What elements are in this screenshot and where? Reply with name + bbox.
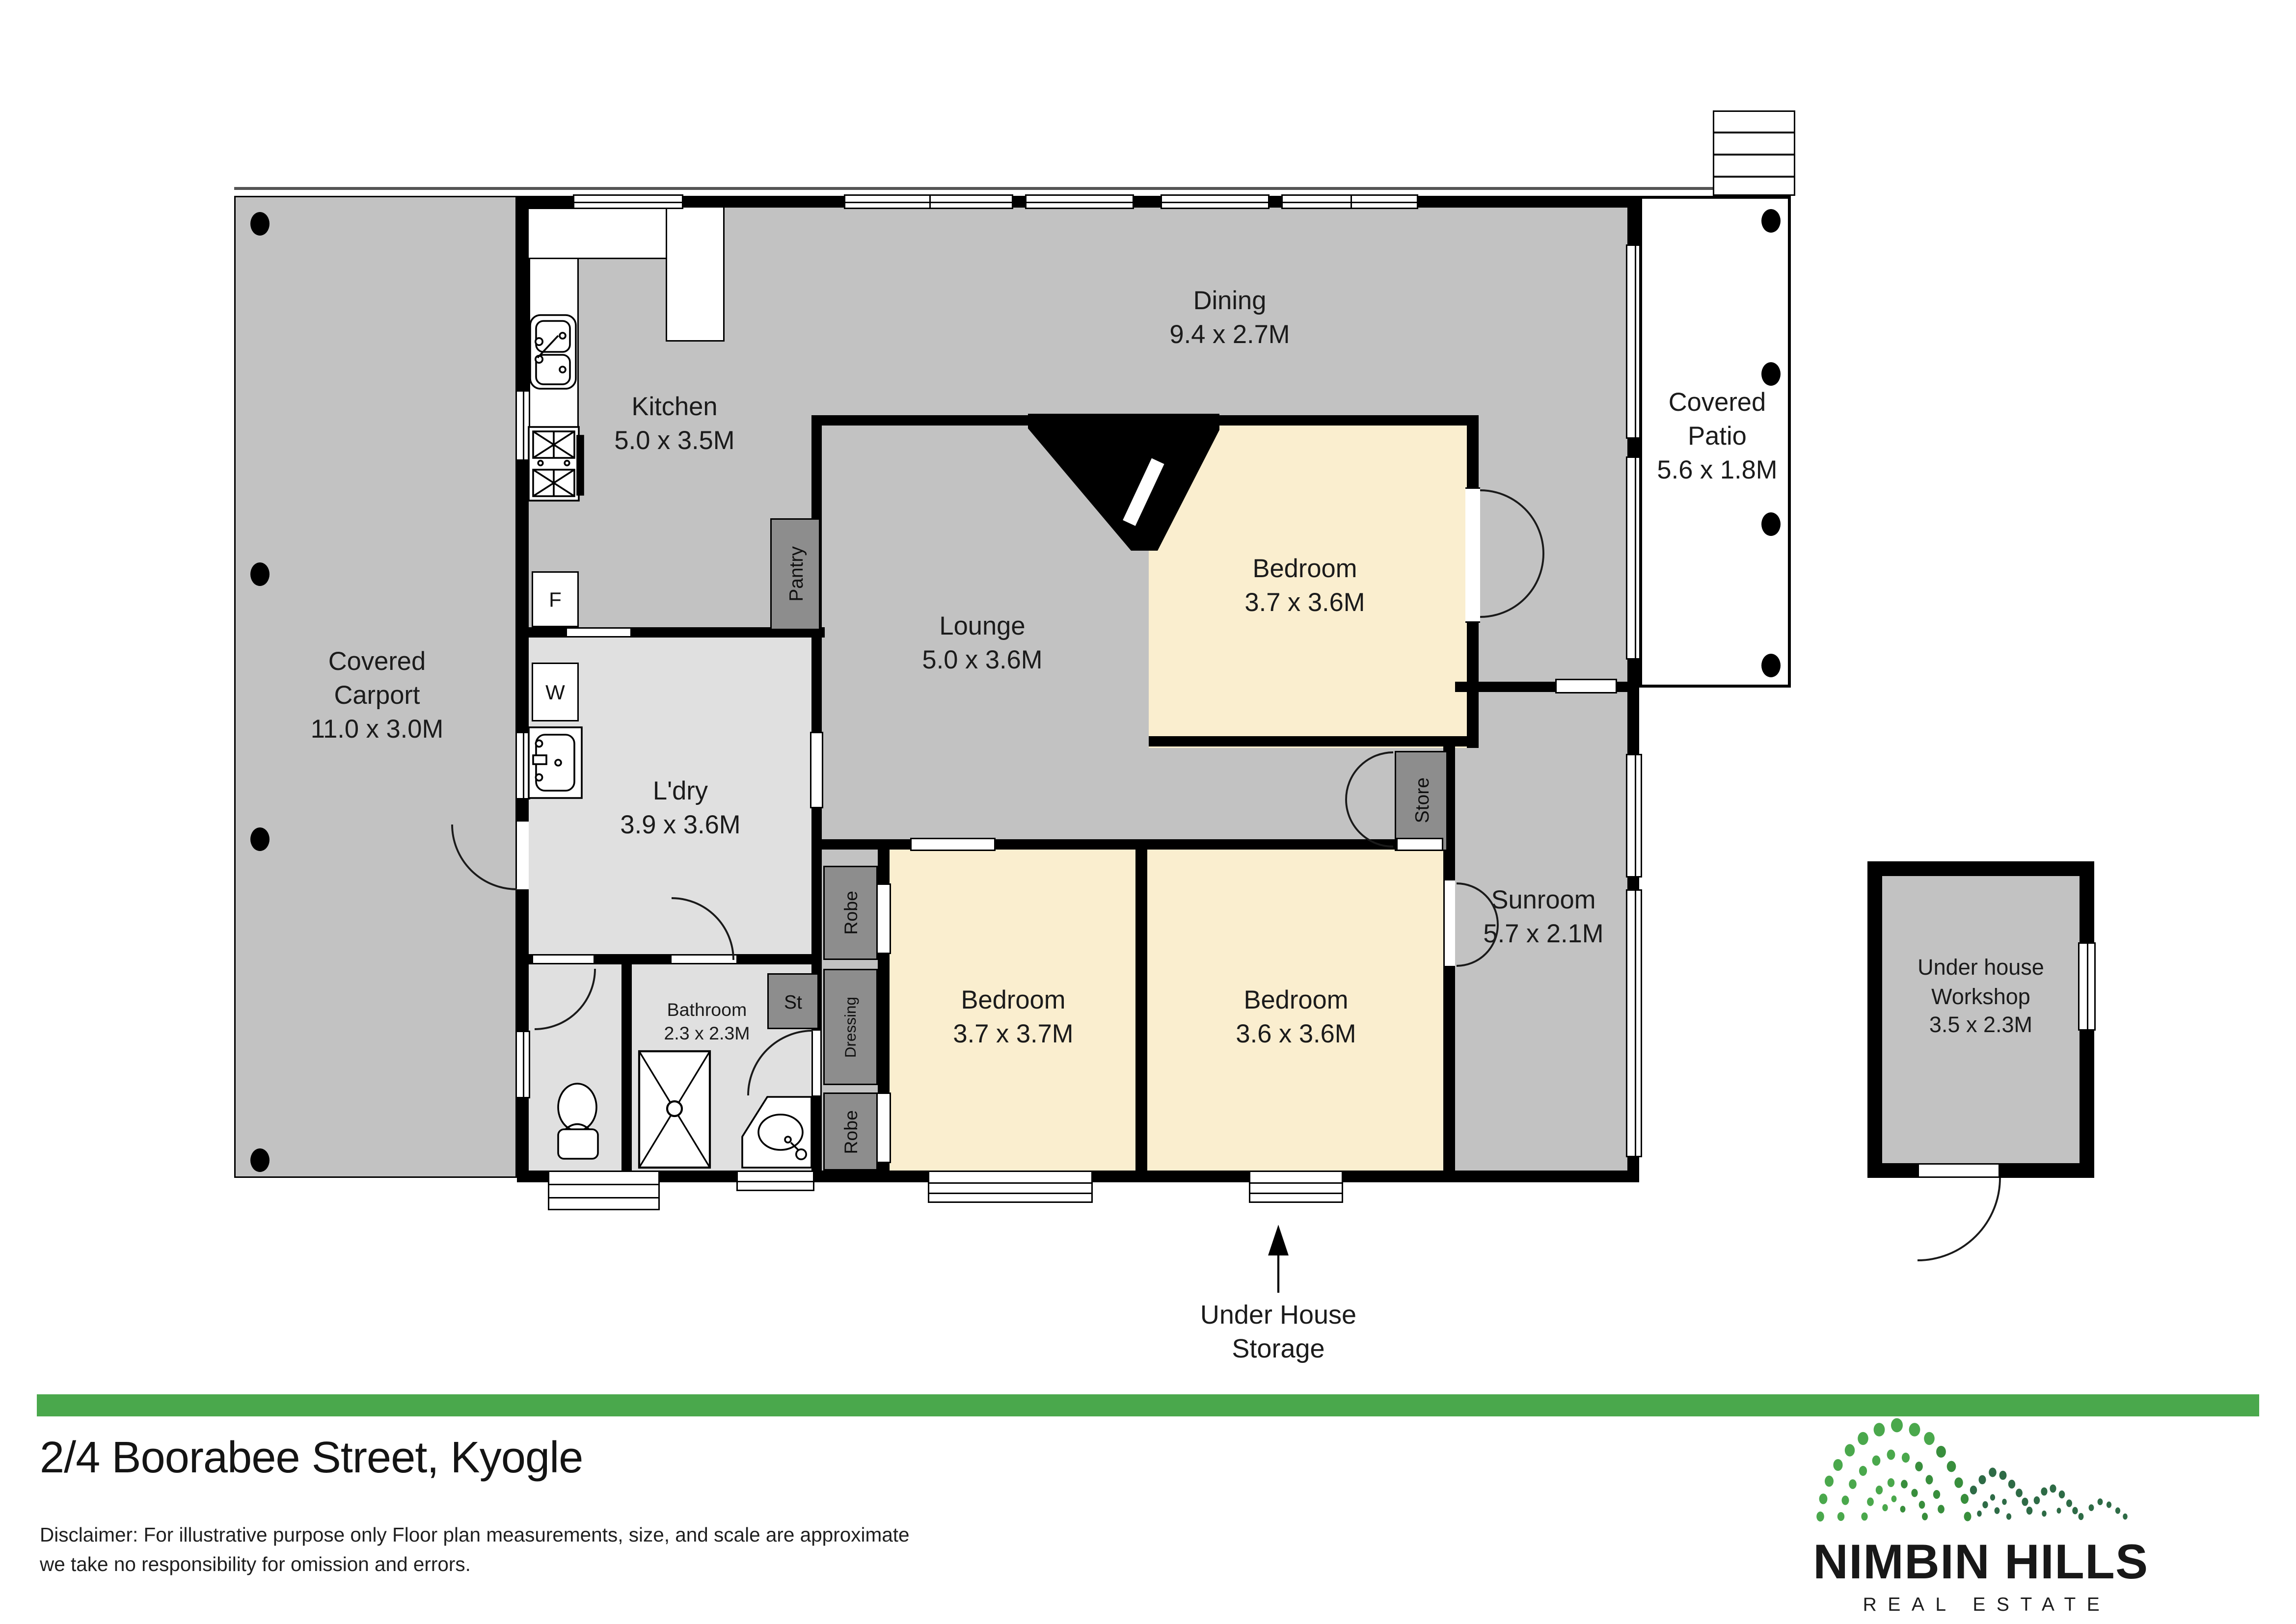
store-cupboard: Store bbox=[1395, 751, 1448, 851]
disclaimer-line1: Disclaimer: For illustrative purpose onl… bbox=[40, 1521, 910, 1551]
room-dims: 11.0 x 3.0M bbox=[296, 712, 458, 745]
window bbox=[1555, 679, 1617, 693]
label-patio: Covered Patio 5.6 x 1.8M bbox=[1654, 386, 1781, 486]
door-opening bbox=[876, 883, 891, 954]
fridge-label: F bbox=[549, 587, 562, 611]
room-name: Covered Patio bbox=[1654, 386, 1781, 453]
room-name: Sunroom bbox=[1462, 883, 1624, 917]
kitchen-counter bbox=[666, 208, 725, 342]
label-under-house-storage: Under House Storage bbox=[1168, 1299, 1389, 1367]
room-dims: 2.3 x 2.3M bbox=[641, 1022, 773, 1046]
room-dims: 5.0 x 3.6M bbox=[894, 643, 1071, 676]
label-carport: Covered Carport 11.0 x 3.0M bbox=[296, 645, 458, 745]
logo-hills-icon bbox=[1816, 1418, 2128, 1522]
room-name: Covered Carport bbox=[296, 645, 458, 712]
room-dims: 3.5 x 2.3M bbox=[1894, 1012, 2068, 1040]
opening bbox=[810, 732, 823, 808]
dressing-label: Dressing bbox=[842, 996, 860, 1057]
carport-post-icon bbox=[250, 827, 270, 851]
door-opening bbox=[813, 1031, 820, 1095]
label-sunroom: Sunroom 5.7 x 2.1M bbox=[1462, 883, 1624, 951]
logo-subtitle: REAL ESTATE bbox=[1863, 1593, 2111, 1615]
room-name: Bedroom bbox=[1209, 552, 1401, 586]
window bbox=[1626, 754, 1642, 878]
window bbox=[1025, 194, 1134, 209]
patio-post-icon bbox=[1761, 654, 1781, 677]
label-dining: Dining 9.4 x 2.7M bbox=[1127, 284, 1333, 351]
window bbox=[844, 194, 1013, 209]
window bbox=[736, 1171, 814, 1191]
room-dims: 3.6 x 3.6M bbox=[1200, 1017, 1392, 1050]
fridge-box: F bbox=[532, 571, 579, 627]
patio-post-icon bbox=[1761, 209, 1781, 233]
window bbox=[2078, 942, 2096, 1031]
property-address: 2/4 Boorabee Street, Kyogle bbox=[40, 1434, 583, 1484]
label-bedroom1: Bedroom 3.7 x 3.6M bbox=[1209, 552, 1401, 619]
door-opening bbox=[672, 956, 736, 963]
stairs bbox=[1713, 110, 1795, 196]
carport-post-icon bbox=[250, 562, 270, 586]
disclaimer-text: Disclaimer: For illustrative purpose onl… bbox=[40, 1521, 910, 1581]
wall bbox=[1135, 839, 1147, 1171]
label-ldry: L'dry 3.9 x 3.6M bbox=[592, 774, 769, 842]
room-name: Bedroom bbox=[918, 984, 1109, 1017]
window bbox=[910, 838, 996, 851]
room-dims: 3.9 x 3.6M bbox=[592, 808, 769, 841]
robe-label: Robe bbox=[840, 891, 861, 935]
room-wc-floor bbox=[529, 964, 621, 1171]
room-name: Dining bbox=[1127, 284, 1333, 318]
washer-label: W bbox=[545, 680, 565, 704]
window bbox=[1396, 838, 1443, 851]
door-opening bbox=[567, 629, 630, 636]
window bbox=[515, 390, 530, 461]
robe-bottom-cupboard: Robe bbox=[823, 1092, 878, 1171]
robe-top-cupboard: Robe bbox=[823, 866, 878, 960]
wall bbox=[621, 964, 632, 1171]
window bbox=[515, 1031, 530, 1098]
door-opening bbox=[533, 956, 594, 963]
room-name: Kitchen bbox=[586, 390, 763, 424]
room-name: Lounge bbox=[894, 610, 1071, 643]
storage-arrow-icon bbox=[1270, 1228, 1287, 1293]
window bbox=[1626, 889, 1642, 1157]
room-name: Bedroom bbox=[1200, 984, 1392, 1017]
store-label: Store bbox=[1410, 778, 1432, 824]
steps bbox=[548, 1171, 660, 1210]
linen-cupboard: St bbox=[767, 973, 819, 1029]
label-kitchen: Kitchen 5.0 x 3.5M bbox=[586, 390, 763, 457]
window bbox=[573, 194, 683, 209]
window-sill bbox=[928, 1171, 1093, 1203]
room-name: L'dry bbox=[592, 774, 769, 808]
room-dims: 3.7 x 3.6M bbox=[1209, 586, 1401, 619]
carport-post-icon bbox=[250, 212, 270, 236]
label-workshop: Under house Workshop 3.5 x 2.3M bbox=[1894, 954, 2068, 1040]
eave-line bbox=[234, 187, 1791, 189]
logo-title: NIMBIN HILLS bbox=[1813, 1534, 2148, 1590]
patio-post-icon bbox=[1761, 512, 1781, 536]
door-opening bbox=[1445, 880, 1455, 966]
door-arc bbox=[1918, 1178, 2000, 1260]
dressing-cupboard: Dressing bbox=[823, 969, 878, 1085]
room-name: Under house Workshop bbox=[1894, 954, 2068, 1012]
window bbox=[1281, 194, 1418, 209]
room-dims: 3.7 x 3.7M bbox=[918, 1017, 1109, 1050]
door-opening bbox=[1465, 487, 1480, 623]
patio-post-icon bbox=[1761, 362, 1781, 386]
wall bbox=[820, 415, 1038, 426]
washer-box: W bbox=[532, 663, 579, 721]
linen-label: St bbox=[784, 990, 802, 1012]
door-opening bbox=[876, 1092, 891, 1163]
room-name: Bathroom bbox=[641, 998, 773, 1022]
disclaimer-line2: we take no responsibility for omission a… bbox=[40, 1551, 910, 1581]
room-dims: 5.0 x 3.5M bbox=[586, 424, 763, 457]
footer-accent-bar bbox=[37, 1394, 2259, 1416]
label-bedroom3: Bedroom 3.6 x 3.6M bbox=[1200, 984, 1392, 1051]
door-opening bbox=[517, 822, 529, 889]
wall bbox=[1149, 736, 1479, 746]
pantry-label: Pantry bbox=[784, 547, 807, 602]
floorplan-page: F W Pantry Robe Dressing Robe St Store bbox=[0, 0, 2296, 1624]
room-dims: 5.7 x 2.1M bbox=[1462, 917, 1624, 950]
window-sill bbox=[1249, 1171, 1343, 1203]
wall bbox=[1149, 415, 1479, 426]
label-bathroom: Bathroom 2.3 x 2.3M bbox=[641, 998, 773, 1046]
room-dims: 5.6 x 1.8M bbox=[1654, 453, 1781, 486]
room-name: Under House Storage bbox=[1168, 1299, 1389, 1367]
label-bedroom2: Bedroom 3.7 x 3.7M bbox=[918, 984, 1109, 1051]
pantry-cupboard: Pantry bbox=[770, 518, 820, 630]
robe-label: Robe bbox=[840, 1110, 861, 1154]
window bbox=[515, 732, 530, 799]
carport-post-icon bbox=[250, 1148, 270, 1172]
label-lounge: Lounge 5.0 x 3.6M bbox=[894, 610, 1071, 677]
door-opening bbox=[1918, 1163, 2000, 1178]
room-dims: 9.4 x 2.7M bbox=[1127, 318, 1333, 351]
window bbox=[1161, 194, 1270, 209]
